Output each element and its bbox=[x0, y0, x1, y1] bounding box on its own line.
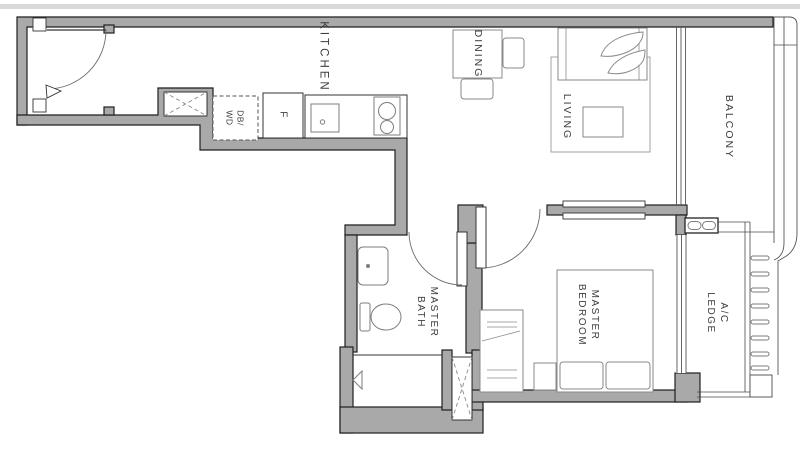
shower-area bbox=[353, 355, 442, 389]
door-frame-icon bbox=[33, 18, 46, 31]
bedroom-window-east bbox=[676, 235, 686, 373]
kitchen-counter bbox=[305, 95, 407, 138]
ledge-column bbox=[750, 375, 772, 397]
room-label-living: LIVING bbox=[559, 94, 573, 140]
bath-shaft bbox=[452, 357, 472, 420]
door-panel bbox=[457, 232, 467, 286]
bedside-table bbox=[534, 363, 556, 390]
dining-chair bbox=[461, 79, 493, 99]
kitchen-shaft bbox=[164, 92, 207, 116]
sink-icon bbox=[311, 104, 339, 132]
floor-plan-canvas bbox=[0, 0, 800, 455]
bath-vanity-icon bbox=[358, 247, 388, 285]
room-label-ac-ledge: A/C LEDGE bbox=[704, 292, 730, 333]
shower-drain-icon bbox=[353, 371, 362, 389]
bedroom-door bbox=[476, 207, 540, 268]
louver-fins-icon bbox=[751, 256, 769, 370]
toilet-icon bbox=[360, 303, 401, 331]
door-panel bbox=[476, 207, 486, 268]
bed bbox=[557, 270, 653, 392]
door-swing-arc bbox=[47, 30, 106, 89]
bath-door bbox=[409, 232, 467, 286]
door-swing-arc bbox=[481, 209, 540, 268]
dining-chair bbox=[503, 38, 524, 68]
entry-door bbox=[33, 18, 106, 112]
top-strip bbox=[0, 4, 800, 9]
label-db-wd: DB/ WD bbox=[224, 110, 245, 126]
dining-set bbox=[453, 30, 524, 99]
room-label-master-bath: MASTER BATH bbox=[414, 287, 440, 338]
louver-vent-icon bbox=[685, 218, 718, 233]
balcony-glass-door bbox=[677, 27, 686, 205]
room-label-dining: DINING bbox=[470, 30, 484, 79]
sofa bbox=[558, 28, 647, 80]
floor-plan: KITCHEN DINING LIVING BALCONY MASTER BED… bbox=[0, 0, 800, 455]
cooktop-icon bbox=[374, 97, 400, 135]
door-leaf-icon bbox=[46, 85, 61, 98]
room-label-master-bedroom: MASTER BEDROOM bbox=[575, 284, 601, 346]
room-label-balcony: BALCONY bbox=[721, 95, 735, 159]
door-swing-arc bbox=[409, 232, 462, 285]
coffee-table bbox=[583, 107, 623, 137]
walls bbox=[17, 17, 773, 433]
outer-boundary bbox=[773, 17, 797, 375]
pillow-icon bbox=[606, 362, 650, 389]
pillow-icon bbox=[560, 362, 603, 389]
room-label-kitchen: KITCHEN bbox=[316, 21, 331, 92]
door-frame-icon bbox=[33, 99, 46, 112]
balcony-rail bbox=[773, 17, 797, 375]
label-fridge: F bbox=[277, 111, 290, 119]
wardrobe bbox=[480, 310, 523, 392]
